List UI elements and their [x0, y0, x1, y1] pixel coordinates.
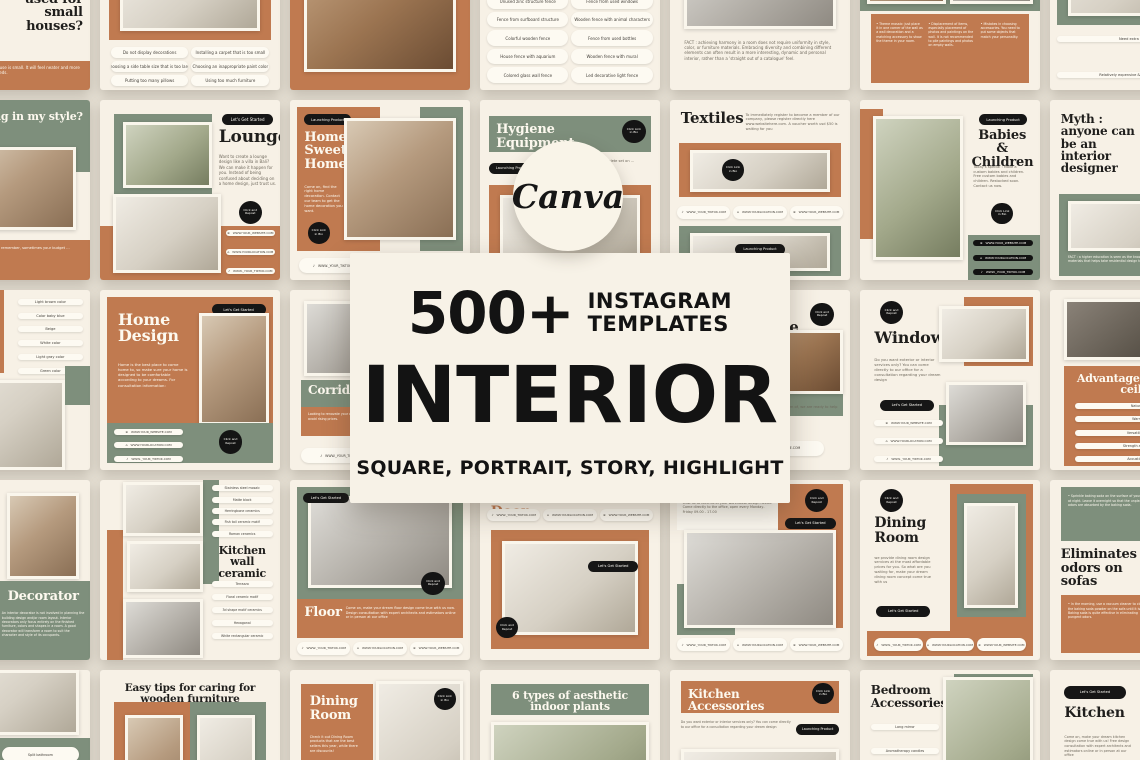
feature-pill: ♪WWW._YOUR_TIKTOK.COM [973, 269, 1032, 275]
bundle-count-row: 500+ INSTAGRAM TEMPLATES [408, 279, 732, 347]
template-tile-floor: Let's Get StartedClick and RepostFloorCo… [290, 480, 470, 660]
feature-pill: Putting too many pillows [111, 75, 189, 86]
pill-label: Unused zinc structure fence [500, 0, 556, 4]
pill-label: Hexagonal [234, 621, 251, 625]
cta-badge: Click and Repost [880, 489, 903, 512]
tiktok-icon: ♪ [492, 513, 494, 517]
feature-pill: ⊕WWW.YOUR_WEBSITE.COM [114, 429, 182, 435]
pill-list: TerrazzoFloral ceramic motif3d shape mot… [212, 581, 273, 640]
canva-logo-text: Canva [512, 177, 624, 216]
feature-pill: Floral ceramic motif [212, 594, 273, 600]
pill-label: WWW.YOURLOCATION.COM [985, 256, 1026, 260]
bathroom-photo [0, 670, 79, 735]
tile-title: 6 types of aesthetic indoor plants [498, 690, 642, 710]
tile-title: Floor [304, 606, 344, 629]
pill-list: ♪WWW._YOUR_TIKTOK.COM⌂WWW.YOURLOCATION.C… [677, 638, 843, 651]
template-count: 500+ [408, 279, 574, 347]
cta-badge: Click Link in Bio [812, 683, 834, 705]
pill-label: Fence from surfboard structure [497, 17, 559, 22]
dining-photo [867, 0, 946, 4]
pill-label: Beige [45, 327, 55, 331]
template-tile-bedroom-accessories: Bedroom AccessoriesLong mirrorAromathera… [860, 670, 1040, 760]
feature-pill: Light gray color [18, 354, 83, 360]
empty-room-photo [946, 382, 1025, 445]
pill-label: Wooden fence with mural [587, 54, 638, 59]
pill-list: ⊕WWW.YOUR_WEBSITE.COM⌂WWW.YOURLOCATION.C… [973, 240, 1032, 276]
tile-title: Myth : anyone can be an interior designe… [1061, 113, 1140, 192]
cta-chip: Let's Get Started [222, 114, 272, 125]
template-tile-used-for-small-houses: used for small houses?create your dream … [0, 0, 90, 90]
pill-label: WWW.YOURLOCATION.COM [131, 443, 172, 447]
pill-list: ♪WWW._YOUR_TIKTOK.COM⌂WWW.YOURLOCATION.C… [487, 509, 653, 522]
feature-pill: ⊕WWW.YOUR_WEBSITE.COM [977, 638, 1025, 651]
tile-text: Check it out Dining Room products that a… [310, 735, 360, 760]
tile-text: Home is the best place to come home to, … [118, 362, 190, 409]
pill-list: Natural beautyWarm shadesVersatility in … [1075, 403, 1140, 462]
feature-pill: ⌂WWW.YOURLOCATION.COM [114, 442, 182, 448]
pill-label: Terrazzo [236, 582, 249, 586]
pill-label: Colorful wooden fence [505, 36, 550, 41]
feature-pill: ⊕WWW.YOUR_WEBSITE.COM [226, 230, 275, 236]
template-tile-bathroom-types: … bathroomSplit bathroom [0, 670, 90, 760]
tile-title: Advantages of wooden ceilings [1073, 373, 1140, 400]
living-room-photo [684, 0, 835, 29]
feature-pill: Fish tail ceramic motif [212, 519, 273, 525]
tile-title: Lounge [219, 129, 277, 151]
pill-label: Fish tail ceramic motif [225, 520, 260, 524]
terrace-photo [125, 715, 183, 760]
pill-label: Floral ceramic motif [226, 595, 258, 599]
website-icon: ⊕ [413, 646, 416, 650]
shelf-photo [123, 482, 202, 536]
dining-set-photo [964, 503, 1018, 607]
feature-pill: ⌂WWW.YOURLOCATION.COM [973, 255, 1032, 261]
tile-text: An interior decorator is not involved in… [2, 611, 85, 654]
template-tile-warehouse-design: Click and RepostLet's Get StartedConfuse… [670, 480, 850, 660]
feature-pill: ♪WWW._YOUR_TIKTOK.COM [874, 638, 922, 651]
feature-pill: ♪WWW._YOUR_TIKTOK.COM [226, 268, 275, 274]
location-icon: ⌂ [927, 643, 929, 647]
cta-badge: Click and Repost [219, 430, 242, 453]
pill-label: WWW._YOUR_TIKTOK.COM [986, 270, 1025, 274]
feature-pill: Fence from used bottles [571, 30, 652, 46]
template-tile-indoor-plants: 6 types of aesthetic indoor plants [480, 670, 660, 760]
living-room-photo [344, 118, 456, 240]
pill-label: WWW.YOURLOCATION.COM [891, 439, 932, 443]
template-tile-dining-room-sale: Dining RoomCheck it out Dining Room prod… [290, 670, 470, 760]
location-icon: ⌂ [227, 250, 229, 254]
living-room-photo [199, 313, 269, 425]
pill-label: WWW._YOUR_TIKTOK.COM [687, 643, 726, 647]
cta-chip: Let's Get Started [1064, 686, 1125, 699]
feature-pill: Roman ceramics [212, 531, 273, 537]
feature-pill: Installing a carpet that is too small [191, 47, 269, 58]
tile-text: • Theme mosaic: just place it in one cor… [876, 22, 923, 76]
feature-pill: ⌂WWW.YOURLOCATION.COM [733, 638, 786, 651]
bunk-bed-photo [873, 116, 963, 260]
pill-label: WWW.YOURLOCATION.COM [742, 643, 783, 647]
staircase-photo [304, 0, 455, 72]
feature-pill: Using too much furniture [191, 75, 269, 86]
template-tile-home-design: Let's Get StartedHome DesignHome is the … [100, 290, 280, 470]
pill-label: WWW.YOUR_WEBSITE.COM [799, 210, 840, 214]
tile-title: Dining Room [310, 695, 364, 727]
feature-pill: Matte black [212, 497, 273, 503]
feature-pill: ♪WWW._YOUR_TIKTOK.COM [874, 456, 942, 462]
pill-label: Colored glass wall fence [504, 73, 552, 78]
feature-pill: ♪WWW._YOUR_TIKTOK.COM [677, 638, 730, 651]
cta-chip: Let's Get Started [588, 561, 638, 572]
feature-pill: Relatively expensive & requires maintena… [1057, 72, 1140, 78]
feature-pill: Wooden fence with animal characters [571, 12, 652, 28]
cta-badge: Click Link in Bio [308, 222, 330, 244]
feature-pill: ⊕WWW.YOUR_WEBSITE.COM [600, 509, 653, 522]
tiktok-icon: ♪ [302, 646, 304, 650]
tile-title: Window [874, 330, 942, 352]
template-tile-dining-room: Click and RepostDining Roomwe provide di… [860, 480, 1040, 660]
cta-badge: Click Link in Bio [991, 203, 1013, 225]
tiktok-icon: ♪ [981, 270, 983, 274]
pill-list: ♪WWW._YOUR_TIKTOK.COM⌂WWW.YOURLOCATION.C… [874, 638, 1025, 651]
feature-pill: Led decorative light fence [571, 67, 652, 83]
feature-pill: ⌂WWW.YOURLOCATION.COM [733, 206, 786, 219]
cta-chip: Launching Product [796, 724, 839, 735]
template-tile-kitchen-accessories: Kitchen AccessoriesClick Link in BioDo y… [670, 670, 850, 760]
bedroom-photo [690, 150, 830, 191]
location-icon: ⌂ [737, 643, 739, 647]
feature-pill: Terrazzo [212, 581, 273, 587]
pill-label: Installing a carpet that is too small [196, 50, 266, 55]
cta-chip: Let's Get Started [303, 493, 350, 504]
feature-pill: Unused zinc structure fence [487, 0, 568, 9]
pill-label: Split bathroom [28, 753, 53, 757]
pill-label: Need extra preparation [1119, 37, 1140, 41]
tile-title: Home Sweet Home [304, 131, 347, 181]
pill-label: WWW.YOUR_WEBSITE.COM [891, 421, 932, 425]
pill-label: Fence from used windows [586, 0, 638, 4]
feature-pill: Colorful wooden fence [487, 30, 568, 46]
pill-label: Natural beauty [1131, 404, 1140, 408]
bay-window-photo [939, 306, 1029, 362]
template-tile-kitchen: Let's Get StartedKitchenCome on, make yo… [1050, 670, 1140, 760]
pill-label: Fence from used bottles [588, 36, 636, 41]
cta-badge: Click Link in Bio [622, 120, 645, 143]
pill-list: ⊕WWW.YOUR_WEBSITE.COM⌂WWW.YOURLOCATION.C… [114, 429, 182, 463]
tile-title: Textiles [681, 111, 742, 133]
cta-badge: Click and Repost [239, 201, 262, 224]
pill-label: WWW.YOURLOCATION.COM [362, 646, 403, 650]
tiktok-icon: ♪ [886, 457, 888, 461]
template-tile-wooden-ceilings: Advantages of wooden ceilingsNatural bea… [1050, 290, 1140, 470]
tiktok-icon: ♪ [313, 264, 315, 268]
curtain-photo [1068, 201, 1140, 251]
pill-label: WWW._YOUR_TIKTOK.COM [233, 269, 272, 273]
pill-label: Acoustic properties [1127, 457, 1140, 461]
tile-text: • Sprinkle baking soda on the surface of… [1068, 494, 1140, 534]
cta-badge: Click and Repost [880, 301, 903, 324]
feature-pill: Wooden fence with mural [571, 49, 652, 65]
pill-label: Versatility in design [1127, 431, 1140, 435]
feature-pill: ⌂WWW.YOURLOCATION.COM [226, 249, 275, 255]
pill-label: WWW.YOUR_WEBSITE.COM [985, 241, 1026, 245]
pill-label: Choosing an inappropriate paint color [193, 64, 269, 69]
pill-list: ♪WWW._YOUR_TIKTOK.COM⌂WWW.YOURLOCATION.C… [297, 642, 463, 655]
website-icon: ⊕ [980, 241, 983, 245]
template-tile-staircase [290, 0, 470, 90]
feature-pill: ⌂WWW.YOURLOCATION.COM [874, 438, 942, 444]
cta-badge: Click Link in Bio [722, 159, 744, 181]
pill-label: Using too much furniture [205, 78, 255, 83]
tile-title: Home Design [118, 312, 190, 359]
tiktok-icon: ♪ [320, 454, 322, 458]
cta-badge: Click and Repost [421, 572, 444, 595]
pill-label: Light gray color [36, 355, 64, 359]
pill-label: WWW.YOUR_WEBSITE.COM [609, 513, 650, 517]
feature-pill: ♪WWW._YOUR_TIKTOK.COM [487, 509, 540, 522]
tile-title: Dining Room [874, 516, 939, 548]
feature-pill: ⌂WWW.YOURLOCATION.COM [926, 638, 974, 651]
bundle-formats-subtitle: SQUARE, PORTRAIT, STORY, HIGHLIGHT [356, 457, 783, 479]
location-icon: ⌂ [126, 443, 128, 447]
color-block [0, 290, 4, 373]
pill-list: … bathroomSplit bathroom [0, 747, 79, 760]
feature-pill: Herringbone ceramics [212, 508, 273, 514]
location-icon: ⌂ [886, 439, 888, 443]
website-icon: ⊕ [125, 430, 128, 434]
tile-text: • Displacement of items, especially plac… [928, 22, 975, 76]
canva-logo-badge: Canva [513, 141, 623, 251]
tile-text: …dream style may not be on our website …… [0, 246, 79, 275]
pill-label: Strength and endurance [1123, 444, 1140, 448]
feature-pill: Beige [18, 326, 83, 332]
pill-label: Do not display decorations [123, 50, 177, 55]
template-tile-wooden-furniture-tips: Easy tips for caring for wooden furnitur… [100, 670, 280, 760]
bathroom-photo [123, 599, 202, 658]
pill-label: WWW.YOURLOCATION.COM [742, 210, 783, 214]
pill-label: WWW._YOUR_TIKTOK.COM [687, 210, 726, 214]
pill-label: Light brown color [35, 300, 66, 304]
pill-label: Stainless steel mosaic [225, 486, 260, 490]
pill-label: WWW.YOUR_WEBSITE.COM [233, 231, 274, 235]
feature-pill: Natural beauty [1075, 403, 1140, 409]
pill-label: WWW.YOURLOCATION.COM [232, 250, 273, 254]
tile-title: Easy tips for caring for wooden furnitur… [109, 683, 271, 699]
feature-pill: Acoustic properties [1075, 456, 1140, 462]
shelf-photo [127, 541, 203, 591]
feature-pill: Split bathroom [2, 747, 80, 760]
pill-list: Unique house fence from the stair railin… [487, 0, 653, 83]
cta-badge: Click and Repost [810, 303, 833, 326]
cta-badge: Click Link in Bio [434, 688, 456, 710]
feature-pill: Need extra preparation [1057, 36, 1140, 42]
template-tile-decorator: DecoratorAn interior decorator is not in… [0, 480, 90, 660]
feature-pill: Colored glass wall fence [487, 67, 568, 83]
tile-text: Come on, make your dream floor design co… [346, 606, 458, 633]
tile-text: FACT : a higher education is seen as the… [1068, 255, 1140, 273]
feature-pill: ⌂WWW.YOURLOCATION.COM [353, 642, 406, 655]
kitchen-photo [197, 715, 255, 760]
pill-label: WWW._YOUR_TIKTOK.COM [497, 513, 536, 517]
cta-chip: Launching Product [979, 114, 1028, 125]
tile-title: Kitchen Accessories [688, 688, 807, 708]
tile-title: used for small houses? [0, 0, 83, 47]
mirror-photo [943, 677, 1033, 760]
pill-label: WWW.YOUR_WEBSITE.COM [799, 643, 840, 647]
tile-title: Eliminates odors on sofas [1061, 548, 1140, 588]
template-tile-myth-interior-designer: Myth : anyone can be an interior designe… [1050, 100, 1140, 280]
pill-label: Roman ceramics [229, 532, 256, 536]
warehouse-photo [684, 530, 835, 627]
location-icon: ⌂ [980, 256, 982, 260]
tiktok-icon: ♪ [228, 269, 230, 273]
pill-label: Wooden fence with animal characters [574, 17, 650, 22]
feature-pill: ⊕WWW.YOUR_WEBSITE.COM [790, 638, 843, 651]
pill-label: Aromatherapy candles [886, 749, 924, 753]
feature-pill: Color baby blue [18, 313, 83, 319]
paint-swatch-photo [0, 380, 65, 470]
website-icon: ⊕ [793, 210, 796, 214]
pill-list: ⊕WWW.YOUR_WEBSITE.COM⌂WWW.YOURLOCATION.C… [226, 230, 275, 275]
pill-label: Choosing a side table size that is too l… [111, 64, 189, 69]
feature-pill: Do not display decorations [111, 47, 189, 58]
pill-list: ♪WWW._YOUR_TIKTOK.COM⌂WWW.YOURLOCATION.C… [677, 206, 843, 219]
pill-label: 3d shape motif ceramics [222, 608, 261, 612]
pill-label: WWW._YOUR_TIKTOK.COM [131, 457, 170, 461]
pill-label: WWW.YOUR_WEBSITE.COM [419, 646, 460, 650]
pill-label: WWW.YOURLOCATION.COM [932, 643, 973, 647]
template-tile-fact-harmony: FACT : achieving harmony in a room does … [670, 0, 850, 90]
template-tile-eliminates-odors: • Sprinkle baking soda on the surface of… [1050, 480, 1140, 660]
bundle-main-title: INTERIOR [362, 357, 778, 435]
location-icon: ⌂ [357, 646, 359, 650]
tile-text: FACT : achieving harmony in a room does … [684, 40, 835, 87]
feature-pill: Stainless steel mosaic [212, 485, 273, 491]
living-room-photo [1068, 0, 1140, 16]
pill-list: Light brown colorColor baby blueBeigeWhi… [18, 299, 83, 375]
tile-title: Babies & Children [972, 129, 1033, 161]
color-block [65, 366, 90, 406]
cta-badge: Click and Repost [496, 617, 518, 639]
tile-text: Come on, make your dream kitchen design … [1064, 735, 1136, 760]
pill-label: Herringbone ceramics [225, 509, 260, 513]
feature-pill: Choosing an inappropriate paint color [191, 61, 269, 72]
template-tile-house-door: House Doorservices, immediately discuss … [480, 480, 660, 660]
tile-title: …something in my style? [0, 111, 83, 151]
tiktok-icon: ♪ [682, 643, 684, 647]
cta-chip: Let's Get Started [880, 400, 934, 411]
template-tile-preparation-notes: Need extra preparationRelatively expensi… [1050, 0, 1140, 90]
pill-label: WWW._YOUR_TIKTOK.COM [891, 457, 930, 461]
template-tile-something-in-my-style: …something in my style?…dream style may … [0, 100, 90, 280]
template-bundle-preview: used for small houses?create your dream … [0, 0, 1140, 760]
feature-pill: ⊕WWW.YOUR_WEBSITE.COM [410, 642, 463, 655]
instagram-label: INSTAGRAM [588, 290, 733, 313]
bedroom-photo [120, 0, 260, 31]
pill-list: Stainless steel mosaicMatte blackHerring… [212, 485, 273, 537]
tile-text: Want to create a lounge design like a vi… [219, 154, 277, 197]
pill-label: White rectangular ceramic [221, 634, 263, 638]
tile-title: Decorator [4, 590, 83, 608]
pill-label: WWW.YOUR_WEBSITE.COM [131, 430, 172, 434]
library-photo [1064, 299, 1140, 360]
tile-title: Bedroom Accessories [871, 684, 943, 716]
template-tile-color-options: Light brown colorColor baby blueBeigeWhi… [0, 290, 90, 470]
template-tile-lounge: Let's Get StartedLoungeWant to create a … [100, 100, 280, 280]
pill-label: WWW._YOUR_TIKTOK.COM [881, 643, 920, 647]
pill-label: Green color [40, 369, 61, 373]
feature-pill: ⊕WWW.YOUR_WEBSITE.COM [874, 420, 942, 426]
tiktok-icon: ♪ [682, 210, 684, 214]
template-tile-fence-ideas: Unique house fence from the stair railin… [480, 0, 660, 90]
tile-title: Kitchen [1064, 706, 1136, 728]
feature-pill: Light brown color [18, 299, 83, 305]
feature-pill: Strength and endurance [1075, 443, 1140, 449]
pill-list: Need extra preparationRelatively expensi… [1057, 36, 1140, 79]
website-icon: ⊕ [227, 231, 230, 235]
feature-pill: White rectangular ceramic [212, 633, 273, 639]
feature-pill: ♪WWW._YOUR_TIKTOK.COM [677, 206, 730, 219]
feature-pill: House fence with aquarium [487, 49, 568, 65]
feature-pill: White color [18, 340, 83, 346]
website-icon: ⊕ [603, 513, 606, 517]
template-tile-sofa-tips: • Theme mosaic: just place it in one cor… [860, 0, 1040, 90]
instagram-templates-label: INSTAGRAM TEMPLATES [588, 290, 733, 336]
pill-label: White color [40, 341, 60, 345]
cozy-interior-photo [7, 493, 79, 579]
tiktok-icon: ♪ [126, 457, 128, 461]
feature-pill: Aromatherapy candles [871, 748, 939, 754]
tile-title: Kitchen wall ceramic [212, 545, 273, 576]
tile-text: we provide dining room design services a… [874, 556, 933, 603]
tile-text: Do you want exterior or interior service… [681, 720, 793, 742]
template-tile-decor-mistakes: Do not display decorationsInstalling a c… [100, 0, 280, 90]
pill-label: WWW.YOURLOCATION.COM [552, 513, 593, 517]
color-block [107, 530, 123, 660]
pill-list: Do not display decorationsInstalling a c… [111, 47, 269, 87]
pill-label: House fence with aquarium [500, 54, 555, 59]
location-icon: ⌂ [547, 513, 549, 517]
feature-pill: ⊕WWW.YOUR_WEBSITE.COM [790, 206, 843, 219]
feature-pill: ⊕WWW.YOUR_WEBSITE.COM [973, 240, 1032, 246]
pill-label: Matte black [233, 498, 252, 502]
pill-label: Long mirror [895, 725, 915, 729]
plant-room-photo [491, 722, 649, 760]
template-tile-kitchen-wall-ceramic: Stainless steel mosaicMatte blackHerring… [100, 480, 280, 660]
tile-text: • Mistakes in choosing accessories. You … [981, 22, 1024, 76]
pill-label: Warm shades [1132, 417, 1140, 421]
feature-pill: Versatility in design [1075, 430, 1140, 436]
feature-pill: 3d shape motif ceramics [212, 607, 273, 613]
pill-label: Led decorative light fence [586, 73, 638, 78]
feature-pill: ♪WWW._YOUR_TIKTOK.COM [297, 642, 350, 655]
website-icon: ⊕ [793, 643, 796, 647]
tile-text: Today's special : Make a custom babies a… [973, 165, 1031, 201]
pill-label: WWW._YOUR_TIKTOK.COM [307, 646, 346, 650]
tile-text: To immediately register to become a memb… [746, 113, 843, 142]
feature-pill: Fence from surfboard structure [487, 12, 568, 28]
website-icon: ⊕ [978, 643, 981, 647]
tile-text: Do you want exterior or interior service… [874, 357, 942, 397]
templates-label: TEMPLATES [588, 313, 733, 336]
pill-list: ⊕WWW.YOUR_WEBSITE.COM⌂WWW.YOURLOCATION.C… [874, 420, 942, 463]
feature-pill: Long mirror [871, 724, 939, 730]
location-icon: ⌂ [737, 210, 739, 214]
pill-label: WWW.YOUR_WEBSITE.COM [984, 643, 1025, 647]
feature-pill: Choosing a side table size that is too l… [111, 61, 189, 72]
template-tile-babies-and-children: Launching ProductBabies & ChildrenToday'… [860, 100, 1040, 280]
tile-text: create your dream home, even if your hou… [0, 65, 83, 87]
website-icon: ⊕ [885, 421, 888, 425]
